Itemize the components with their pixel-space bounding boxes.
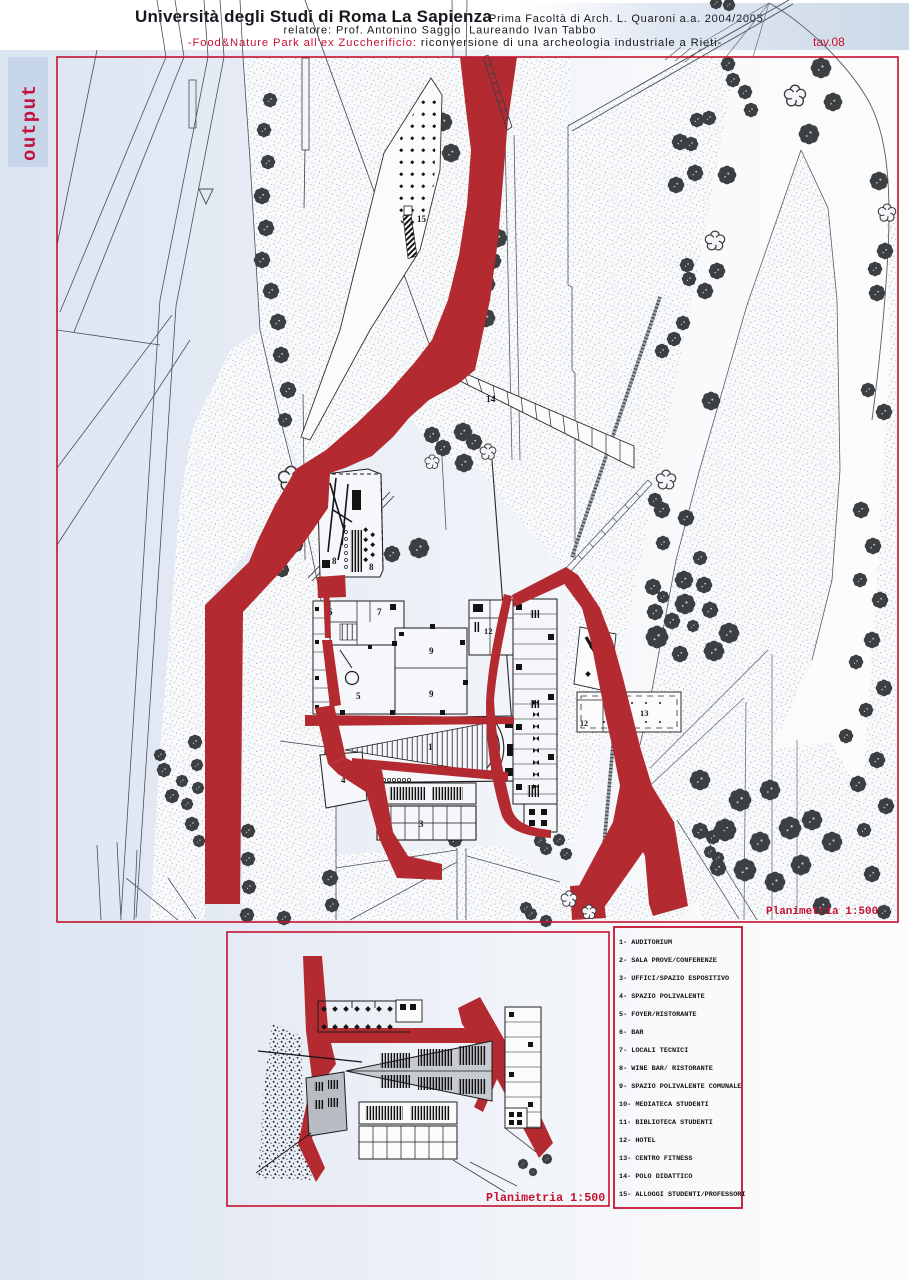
svg-text:1: 1 xyxy=(428,743,433,753)
svg-text:5- FOYER/RISTORANTE: 5- FOYER/RISTORANTE xyxy=(619,1011,697,1019)
svg-text:tav.08: tav.08 xyxy=(813,35,845,49)
svg-text:8- WINE BAR/ RISTORANTE: 8- WINE BAR/ RISTORANTE xyxy=(619,1065,713,1073)
svg-text:9: 9 xyxy=(429,646,434,656)
svg-text:12- HOTEL: 12- HOTEL xyxy=(619,1137,656,1145)
svg-text:Planimetria 1:500: Planimetria 1:500 xyxy=(486,1191,605,1205)
svg-text:11- BIBLIOTECA STUDENTI: 11- BIBLIOTECA STUDENTI xyxy=(619,1119,713,1127)
svg-text:Planimetria 1:500: Planimetria 1:500 xyxy=(766,906,878,918)
svg-text:3: 3 xyxy=(419,819,424,829)
svg-text:5: 5 xyxy=(356,691,361,701)
svg-text:14- POLO DIDATTICO: 14- POLO DIDATTICO xyxy=(619,1173,692,1181)
svg-text:13- CENTRO FITNESS: 13- CENTRO FITNESS xyxy=(619,1155,692,1163)
svg-text:15: 15 xyxy=(417,214,427,224)
svg-text:1- AUDITORIUM: 1- AUDITORIUM xyxy=(619,939,672,947)
svg-text:9- SPAZIO POLIVALENTE COMUNALE: 9- SPAZIO POLIVALENTE COMUNALE xyxy=(619,1083,741,1091)
svg-text:-Food&Nature Park all’ex Zucch: -Food&Nature Park all’ex Zuccherificio: … xyxy=(188,37,722,49)
svg-text:7: 7 xyxy=(377,607,382,617)
svg-text:output: output xyxy=(19,84,41,161)
svg-text:12: 12 xyxy=(484,626,493,636)
svg-text:4- SPAZIO POLIVALENTE: 4- SPAZIO POLIVALENTE xyxy=(619,993,705,1001)
svg-text:relatore: Prof. Antonino Saggi: relatore: Prof. Antonino Saggio Laureand… xyxy=(284,25,597,37)
svg-text:13: 13 xyxy=(640,708,649,718)
svg-text:14: 14 xyxy=(486,395,496,405)
svg-text:7- LOCALI TECNICI: 7- LOCALI TECNICI xyxy=(619,1047,688,1055)
svg-text:6- BAR: 6- BAR xyxy=(619,1029,644,1037)
svg-text:8: 8 xyxy=(369,562,374,572)
svg-text:3- UFFICI/SPAZIO ESPOSITIVO: 3- UFFICI/SPAZIO ESPOSITIVO xyxy=(619,975,729,983)
svg-text:2- SALA PROVE/CONFERENZE: 2- SALA PROVE/CONFERENZE xyxy=(619,957,717,965)
svg-text:15- ALLOGGI STUDENTI/PROFESSOR: 15- ALLOGGI STUDENTI/PROFESSORI xyxy=(619,1191,745,1199)
svg-text:10- MEDIATECA STUDENTI: 10- MEDIATECA STUDENTI xyxy=(619,1101,709,1109)
svg-text:8: 8 xyxy=(332,556,337,566)
svg-text:Prima Facoltà di Arch. L. Quar: Prima Facoltà di Arch. L. Quaroni a.a. 2… xyxy=(489,13,763,25)
svg-text:12: 12 xyxy=(580,719,588,728)
svg-text:9: 9 xyxy=(429,689,434,699)
